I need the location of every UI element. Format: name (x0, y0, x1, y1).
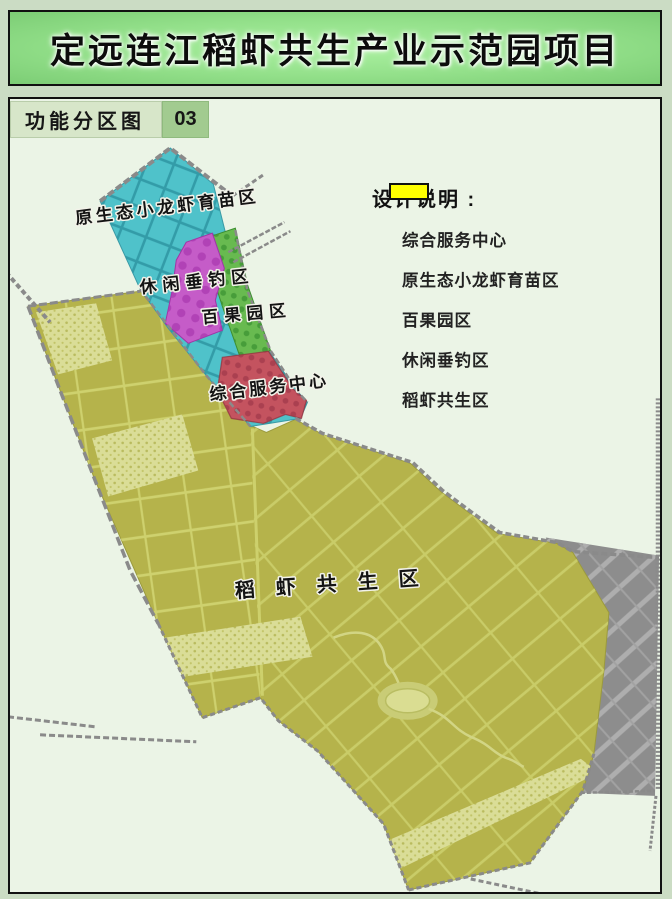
legend-item-crayfish-breeding: 原生态小龙虾育苗区 (372, 267, 660, 291)
legend-item-leisure-fishing: 休闲垂钓区 (372, 347, 660, 371)
page-title: 定远连江稻虾共生产业示范园项目 (50, 23, 620, 74)
subtitle-label-box: 功能分区图 (10, 101, 162, 138)
legend-label: 综合服务中心 (402, 227, 507, 251)
subtitle-label: 功能分区图 (25, 105, 145, 134)
map-panel: 原生态小龙虾育苗区 休闲垂钓区 百果园区 综合服务中心 稻 虾 共 生 区 功能… (8, 97, 662, 894)
subtitle-number: 03 (174, 108, 196, 131)
subtitle-tab: 功能分区图 03 (10, 101, 209, 138)
legend-swatch-yellow (389, 183, 429, 200)
legend-item-rice-shrimp: 稻虾共生区 (372, 387, 660, 411)
subtitle-number-box: 03 (162, 101, 209, 138)
legend-rows: 综合服务中心 原生态小龙虾育苗区 百果园区 (372, 227, 660, 411)
legend-label: 百果园区 (402, 307, 472, 331)
pond (386, 689, 430, 713)
title-banner: 定远连江稻虾共生产业示范园项目 (8, 10, 662, 86)
legend: 设计说明 : 综合服务中心 原生态小龙虾育苗区 (372, 183, 660, 411)
legend-label: 稻虾共生区 (402, 387, 490, 411)
legend-label: 休闲垂钓区 (402, 347, 490, 371)
legend-item-orchard: 百果园区 (372, 307, 660, 331)
legend-item-service-center: 综合服务中心 (372, 227, 660, 251)
page: 定远连江稻虾共生产业示范园项目 (0, 0, 672, 899)
legend-label: 原生态小龙虾育苗区 (402, 267, 560, 291)
